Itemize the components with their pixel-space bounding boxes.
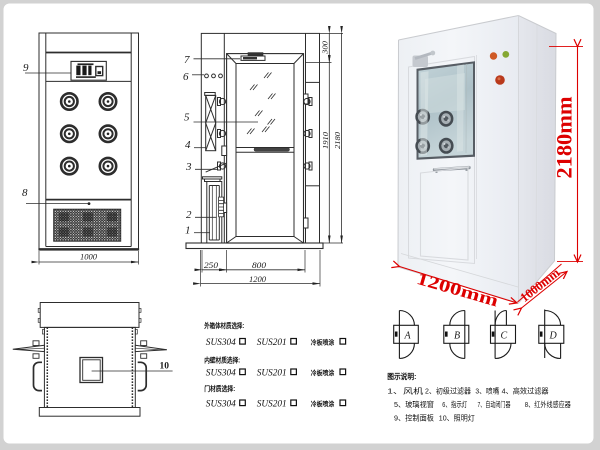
svg-text:1: 1 [185,225,191,237]
svg-text:8: 8 [22,187,28,199]
svg-text:9: 9 [23,62,29,74]
svg-text:1200: 1200 [249,275,266,284]
svg-text:2: 2 [186,209,192,221]
svg-text:C: C [501,330,508,341]
svg-text:门材质选择:: 门材质选择: [204,384,235,393]
svg-text:图示说明:: 图示说明: [387,371,416,381]
svg-text:5: 5 [184,112,190,124]
svg-text:2180mm: 2180mm [552,97,577,179]
svg-text:SUS201: SUS201 [257,400,287,410]
svg-text:D: D [549,330,558,341]
svg-text:SUS304: SUS304 [206,338,236,348]
svg-text:300: 300 [321,41,330,55]
svg-text:SUS304: SUS304 [206,400,236,410]
svg-text:800: 800 [252,261,266,270]
svg-text:SUS201: SUS201 [257,338,287,348]
svg-text:冷板喷涂: 冷板喷涂 [311,399,335,408]
svg-text:2180: 2180 [333,132,342,149]
svg-text:SUS201: SUS201 [257,369,287,379]
svg-text:冷板喷涂: 冷板喷涂 [311,338,335,347]
svg-text:SUS304: SUS304 [206,369,236,379]
svg-text:10: 10 [160,362,170,372]
svg-text:A: A [404,330,412,341]
svg-text:3: 3 [185,161,192,173]
svg-text:外箱体材质选择:: 外箱体材质选择: [204,321,244,330]
svg-text:6: 6 [183,71,189,83]
svg-text:1000: 1000 [80,253,97,262]
svg-text:内壁材质选择:: 内壁材质选择: [204,356,240,365]
svg-text:1、风机2、初级过滤器3、喷嘴4、高效过滤器: 1、风机2、初级过滤器3、喷嘴4、高效过滤器 [387,386,549,396]
svg-text:4: 4 [185,139,191,151]
svg-text:B: B [454,330,460,341]
svg-text:250: 250 [204,261,218,270]
svg-text:1910: 1910 [321,132,330,149]
svg-text:7: 7 [184,54,190,66]
svg-text:冷板喷涂: 冷板喷涂 [311,368,335,377]
svg-text:5、玻璃视窗6、指示灯7、自动闭门器8、红外线感应器: 5、玻璃视窗6、指示灯7、自动闭门器8、红外线感应器 [394,399,571,409]
